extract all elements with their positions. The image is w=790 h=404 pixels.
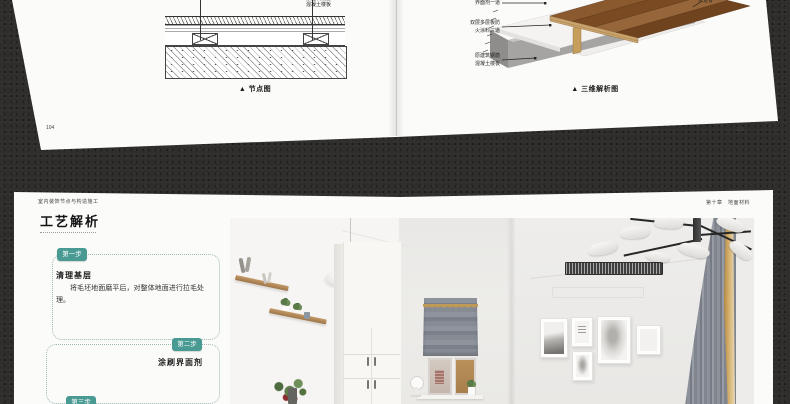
desk-fan-stand (414, 387, 418, 395)
node-diagram-sheet-layers (165, 25, 345, 33)
wardrobe-handle (367, 380, 369, 389)
wardrobe-front (343, 242, 401, 404)
axon-label-concrete-slab: 原建筑钢筋 混凝土楼板 (448, 52, 500, 68)
floor-plant-vase (288, 388, 297, 404)
book-promo-image: 原建筑钢筋 混凝土楼板 ▲ 节点图 104 (0, 0, 790, 404)
axon-label-interface-agent: 界面剂一道 (452, 0, 500, 7)
wardrobe-handle (374, 380, 376, 389)
frame-art-blank (640, 329, 657, 351)
step1-heading: 清理基层 (56, 270, 92, 281)
node-diagram-blocking-x (303, 33, 329, 45)
picture-frame (636, 325, 661, 355)
wardrobe-side (334, 244, 343, 404)
step1-badge: 第一步 (57, 248, 87, 261)
node-diagram-leader-line (200, 0, 201, 40)
step2-badge: 第二步 (172, 338, 202, 351)
roman-shade-gold-trim (423, 304, 478, 310)
step2-dotted-box (46, 344, 220, 404)
ac-linear-vent (565, 262, 663, 275)
node-diagram-concrete-hatch (165, 46, 347, 79)
interior-photo (230, 218, 754, 404)
frame-art-leaf (576, 355, 589, 377)
section-title: 工艺解析 (40, 211, 100, 230)
step2-heading: 涂刷界面剂 (158, 357, 203, 368)
frame-art-text (575, 321, 589, 343)
picture-frame (572, 351, 593, 381)
page-number-left: 104 (46, 125, 54, 131)
picture-frame (571, 317, 593, 347)
node-diagram-caption: ▲ 节点图 (200, 84, 310, 94)
running-header-right: 第十章 地面材料 (640, 199, 750, 206)
top-spread-gutter-line (396, 0, 397, 136)
axon-label-wood-keel: 木龙骨 (698, 0, 728, 5)
axon-diagram-caption: ▲ 三维解析图 (540, 84, 650, 94)
ceiling-lamp-pole (693, 218, 701, 242)
node-diagram-slab-label: 原建筑钢筋 混凝土楼板 (306, 0, 331, 8)
floor-assembly-3d-diagram (450, 0, 750, 95)
picture-frame (540, 318, 568, 358)
rabbit-ear-decor (245, 257, 252, 272)
window-view-building (435, 370, 444, 384)
rabbit-ear-decor (267, 272, 272, 283)
wardrobe-handle (374, 357, 376, 366)
section-title-dotted-rule (40, 232, 96, 233)
window-mullion (452, 358, 455, 395)
step3-badge: 第三步 (66, 396, 96, 404)
window-sill (417, 395, 483, 399)
wardrobe-handle (367, 357, 369, 366)
wardrobe-seam (371, 328, 372, 404)
node-diagram-keel-row (165, 33, 345, 46)
sill-plant-pot (468, 387, 475, 395)
picture-frame (597, 316, 631, 364)
shelf-ornament (304, 312, 310, 319)
frame-art-botanical (601, 320, 627, 360)
node-diagram-blocking-x (192, 33, 218, 45)
desk-fan-base (411, 395, 421, 397)
axon-label-fire-board: 双层多层板防 火涂料三道 (448, 19, 500, 35)
node-diagram-wood-layer (165, 16, 345, 25)
step1-body-text: 将毛坯地面磨平后，对整体地面进行拉毛处理。 (56, 283, 204, 307)
ceiling-access-panel (552, 287, 644, 298)
photo-fold-seam (507, 218, 515, 404)
page-number-right: 105 (736, 127, 744, 133)
frame-art-mountain (544, 322, 564, 354)
running-header-left: 室内装饰节点与构造施工 (38, 198, 99, 205)
